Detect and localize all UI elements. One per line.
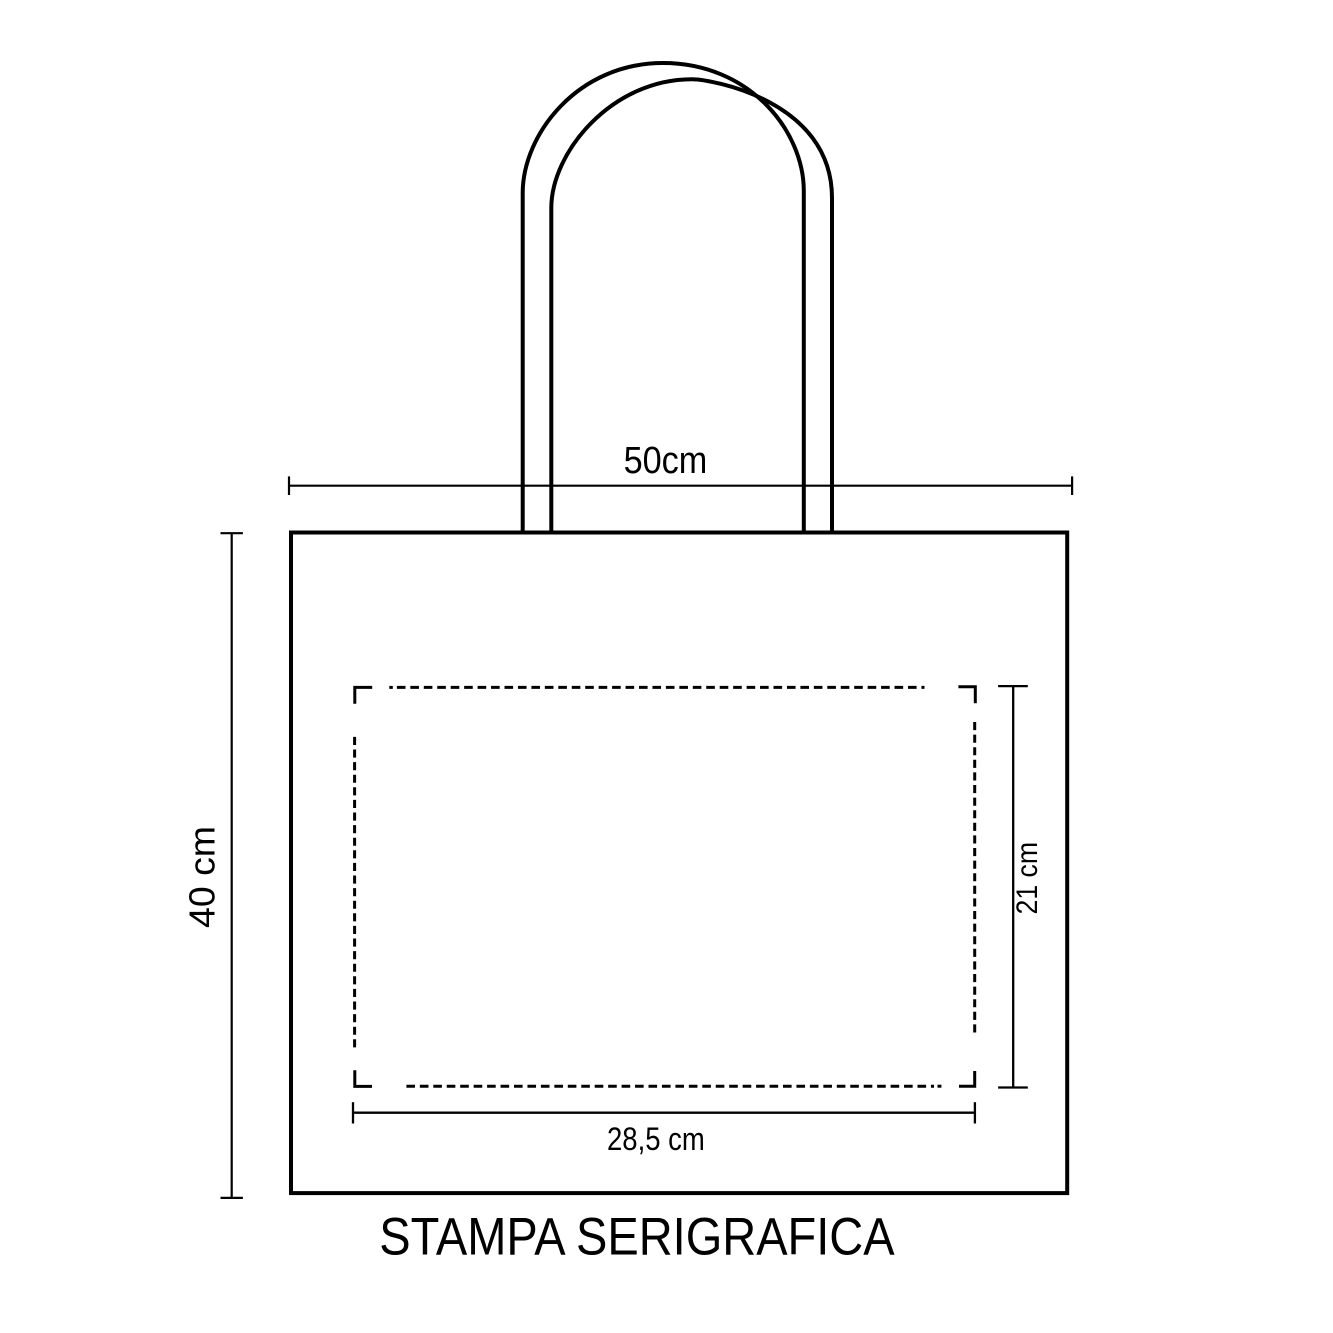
svg-text:40 cm: 40 cm — [182, 826, 223, 928]
svg-text:STAMPA SERIGRAFICA: STAMPA SERIGRAFICA — [379, 1207, 895, 1266]
svg-text:21 cm: 21 cm — [1011, 842, 1044, 915]
svg-text:28,5 cm: 28,5 cm — [607, 1121, 705, 1157]
svg-text:50cm: 50cm — [624, 440, 708, 482]
